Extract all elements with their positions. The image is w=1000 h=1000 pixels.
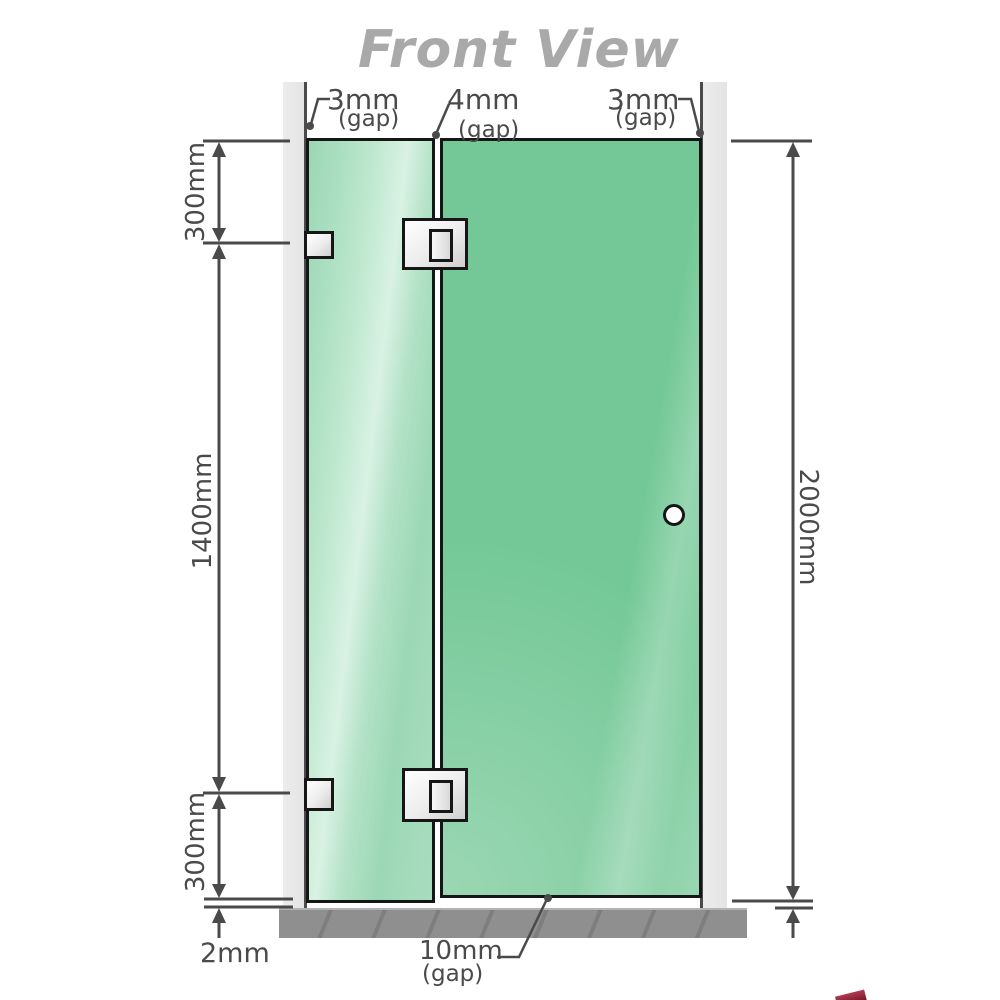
gap-bottom-label: (gap) <box>422 961 483 987</box>
logo-fragment-icon <box>835 990 867 1000</box>
dimension-left-top: 300mm <box>180 112 212 272</box>
dimension-left-middle: 1400mm <box>187 431 219 591</box>
dimension-right-total: 2000mm <box>792 447 824 607</box>
gap-top-left-label: (gap) <box>338 106 399 132</box>
dimension-floor-clearance: 2mm <box>200 938 270 969</box>
floor-bar <box>279 908 747 938</box>
wall-bracket-top-icon <box>304 231 334 259</box>
front-view-diagram: Front View <box>0 0 1000 1000</box>
gap-top-center-value: 4mm <box>447 83 519 116</box>
glass-hinge-top-tongue-icon <box>429 229 453 262</box>
page-title: Front View <box>358 20 678 80</box>
glass-hinge-bottom-tongue-icon <box>429 780 453 813</box>
gap-top-right-label: (gap) <box>615 105 676 131</box>
gap-top-center-label: (gap) <box>458 117 519 143</box>
door-handle-icon <box>663 504 685 526</box>
right-wall-channel <box>700 82 727 908</box>
dimension-left-bottom: 300mm <box>180 762 212 922</box>
wall-bracket-bottom-icon <box>304 778 334 811</box>
